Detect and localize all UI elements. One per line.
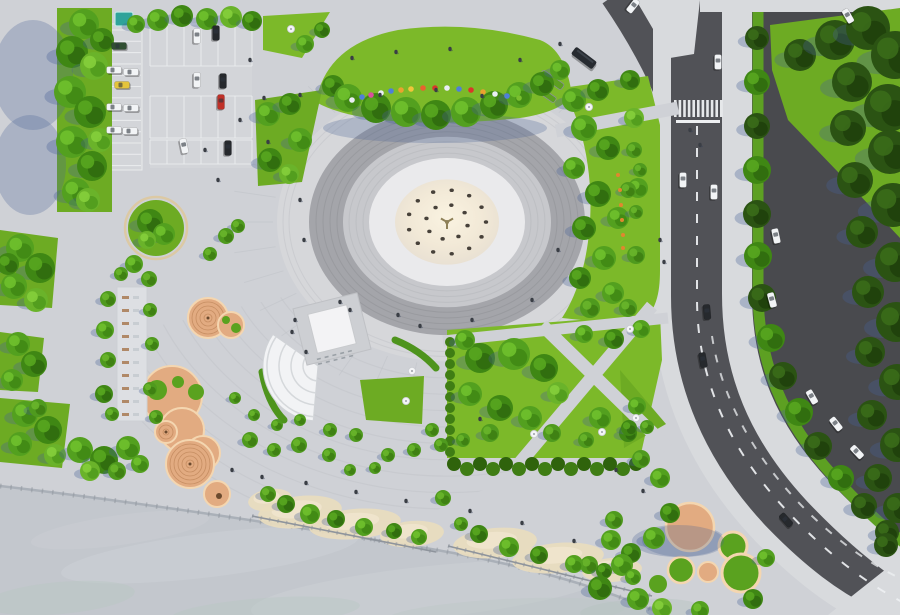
aerial-park-render: [0, 0, 900, 615]
aerial-park-plaza-rendering: [0, 0, 900, 615]
